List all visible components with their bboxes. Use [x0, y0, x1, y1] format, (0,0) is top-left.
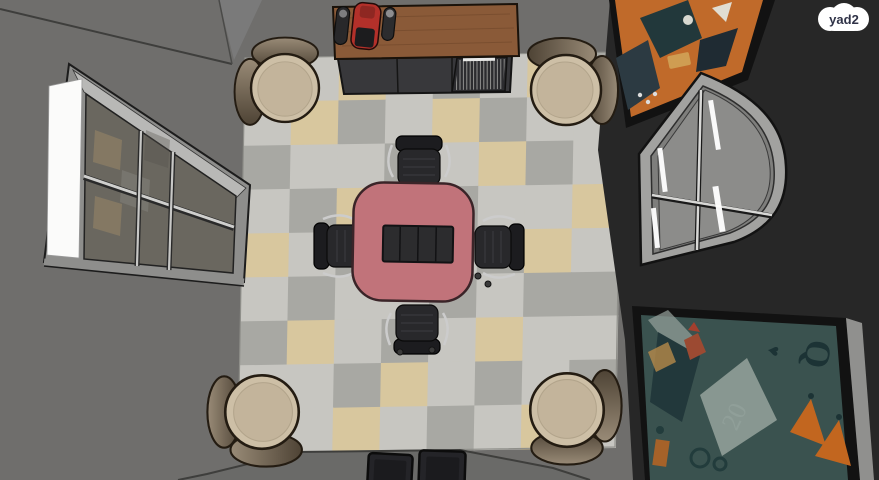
rug-tile — [569, 315, 618, 361]
rug-tile — [332, 407, 381, 453]
room-top-view: Q ♥ 20 — [0, 0, 879, 480]
rug-tile — [522, 316, 571, 362]
rug-tile — [524, 228, 573, 274]
rug-tile — [476, 273, 525, 319]
rack-glint — [463, 58, 495, 62]
light-panel — [47, 79, 82, 258]
rug-tile — [475, 317, 524, 363]
rug-tile — [474, 361, 523, 407]
rug-tile — [525, 141, 574, 187]
bottom-seat-right-cushion — [426, 456, 460, 480]
rug-tile — [570, 271, 619, 317]
bottom-seat-left-cushion — [373, 459, 406, 480]
office-chair-right — [475, 216, 524, 277]
rug-tile — [333, 363, 382, 409]
rug-tile — [240, 277, 289, 323]
rug-tile — [287, 320, 336, 366]
rug-tile — [241, 233, 290, 279]
coffee-machine-tray — [354, 27, 375, 48]
rug-tile — [479, 97, 528, 143]
rug-tile — [478, 141, 527, 187]
rug-tile — [243, 145, 292, 191]
rug-tile — [240, 321, 289, 367]
yad2-logo-text: yad2 — [829, 12, 859, 27]
sideboard — [333, 0, 519, 94]
room-render-svg: Q ♥ 20 — [0, 0, 879, 480]
rug-tile — [525, 184, 574, 230]
rug-tile — [334, 319, 383, 365]
rug-tile — [474, 405, 523, 451]
sideboard-rack-slats — [455, 59, 505, 90]
rug-tile — [338, 100, 387, 146]
rug-tile — [287, 276, 336, 322]
rug-tile — [523, 272, 572, 318]
office-chair-bottom — [386, 305, 447, 354]
rug-tile — [427, 362, 476, 408]
coffee-machine-head — [359, 5, 375, 19]
rug-tile — [290, 144, 339, 190]
meeting-table — [352, 182, 474, 302]
rug-tile — [380, 362, 429, 408]
office-chair-top — [388, 136, 449, 185]
sideboard-seam-1 — [397, 58, 398, 93]
rug-tile — [426, 405, 475, 451]
rug-tile — [379, 406, 428, 452]
artwork-queen-card: Q ♥ 20 — [632, 306, 874, 480]
